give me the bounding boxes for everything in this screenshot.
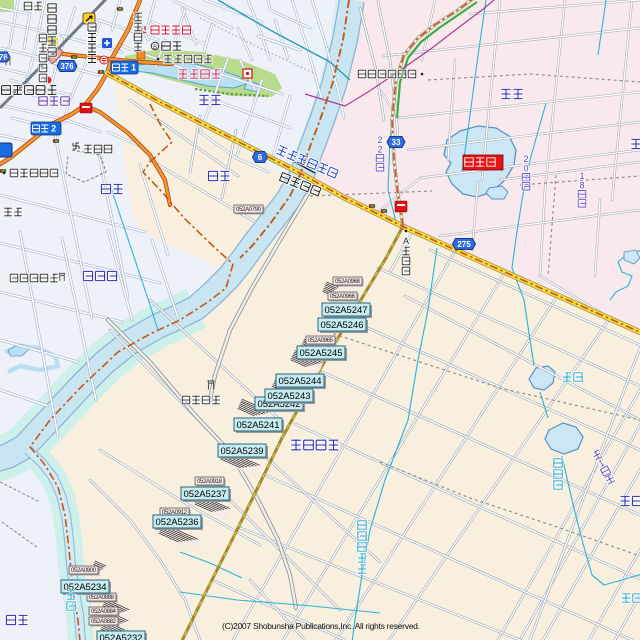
svg-text:052A0900: 052A0900	[71, 568, 97, 574]
svg-text:052A5243: 052A5243	[268, 391, 311, 402]
svg-text:052A5236: 052A5236	[156, 517, 199, 528]
svg-text:052A5247: 052A5247	[325, 305, 368, 316]
svg-text:2: 2	[51, 124, 56, 134]
svg-text:052A5246: 052A5246	[321, 320, 364, 331]
svg-text:(C)2007 Shobunsha Publications: (C)2007 Shobunsha Publications,Inc. All …	[222, 621, 420, 631]
svg-text:B: B	[153, 45, 157, 51]
svg-text:275: 275	[457, 240, 471, 249]
svg-text:A: A	[403, 236, 409, 246]
svg-text:052A0968: 052A0968	[335, 279, 361, 285]
svg-text:052A0965: 052A0965	[308, 338, 334, 344]
svg-text:052A0888: 052A0888	[89, 595, 115, 601]
svg-text:1: 1	[131, 63, 136, 73]
svg-text:052A5232: 052A5232	[100, 633, 143, 640]
svg-text:052A5241: 052A5241	[237, 420, 280, 431]
svg-text:052A5245: 052A5245	[300, 348, 343, 359]
svg-text:052A5239: 052A5239	[221, 446, 264, 457]
svg-text:33: 33	[392, 138, 401, 147]
svg-text:052A0966: 052A0966	[330, 294, 356, 300]
svg-text:8: 8	[579, 180, 584, 190]
svg-text:2: 2	[377, 144, 382, 154]
svg-text:376: 376	[60, 62, 74, 71]
svg-text:052A0918: 052A0918	[197, 479, 223, 485]
svg-text:052A0884: 052A0884	[91, 609, 117, 615]
svg-text:052A5244: 052A5244	[279, 376, 322, 387]
svg-text:052A0882: 052A0882	[91, 619, 117, 625]
svg-text:0: 0	[523, 163, 528, 173]
svg-text:6: 6	[258, 153, 263, 162]
svg-text:052A0790: 052A0790	[236, 207, 262, 213]
svg-text:052A5237: 052A5237	[184, 489, 227, 500]
